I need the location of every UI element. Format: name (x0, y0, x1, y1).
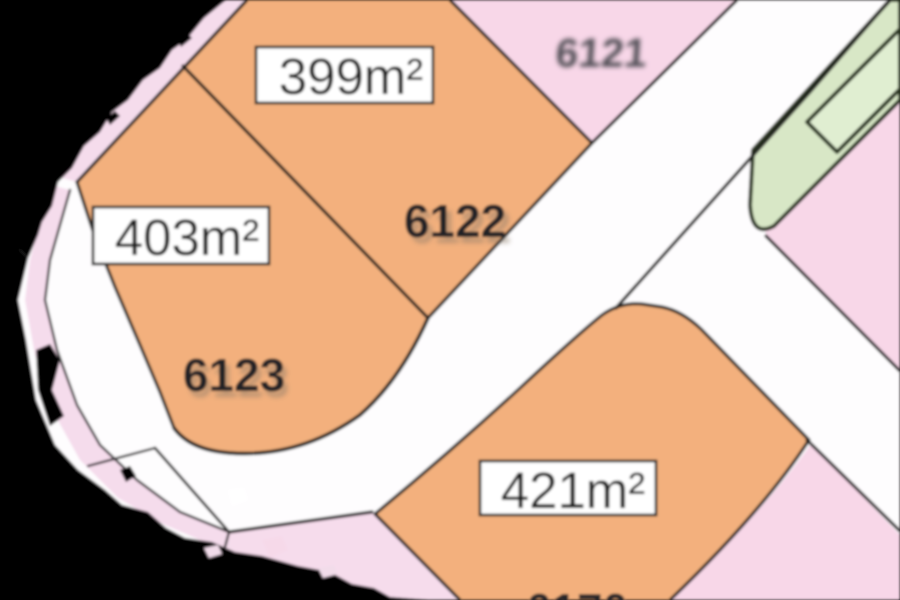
svg-text:6122: 6122 (404, 195, 506, 247)
svg-text:421m²: 421m² (501, 462, 646, 519)
svg-text:399m²: 399m² (279, 48, 424, 105)
svg-text:6121: 6121 (554, 30, 648, 76)
svg-text:6123: 6123 (183, 349, 285, 401)
svg-text:6170: 6170 (526, 584, 628, 600)
svg-text:403m²: 403m² (115, 209, 260, 266)
